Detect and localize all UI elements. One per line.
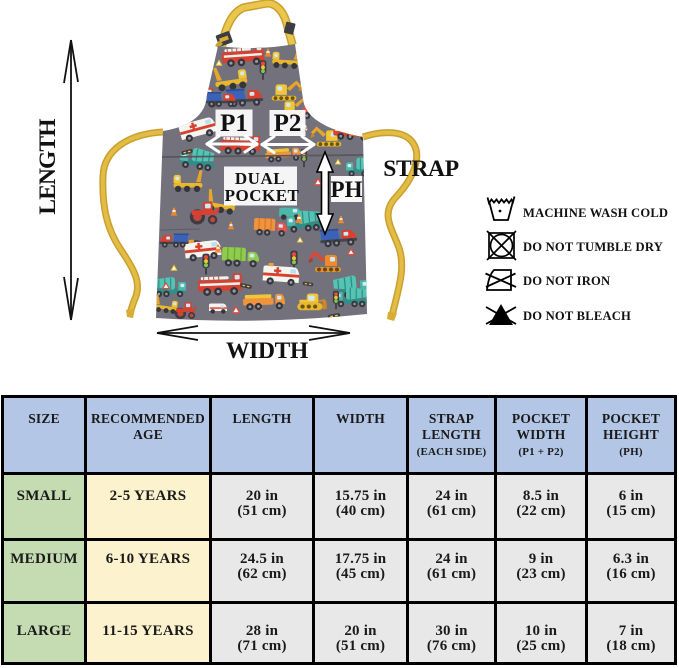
svg-text:P1: P1 bbox=[220, 110, 248, 137]
svg-text:DO NOT TUMBLE DRY: DO NOT TUMBLE DRY bbox=[523, 240, 663, 254]
svg-text:PH: PH bbox=[331, 177, 363, 202]
svg-text:MACHINE WASH COLD: MACHINE WASH COLD bbox=[523, 206, 668, 220]
svg-text:WIDTH: WIDTH bbox=[226, 338, 308, 364]
svg-text:DO NOT BLEACH: DO NOT BLEACH bbox=[523, 309, 631, 323]
svg-text:POCKET: POCKET bbox=[225, 186, 300, 205]
svg-text:LENGTH: LENGTH bbox=[35, 119, 61, 215]
svg-text:P2: P2 bbox=[274, 110, 302, 137]
svg-text:STRAP: STRAP bbox=[383, 156, 459, 182]
svg-text:DO NOT IRON: DO NOT IRON bbox=[523, 274, 610, 288]
